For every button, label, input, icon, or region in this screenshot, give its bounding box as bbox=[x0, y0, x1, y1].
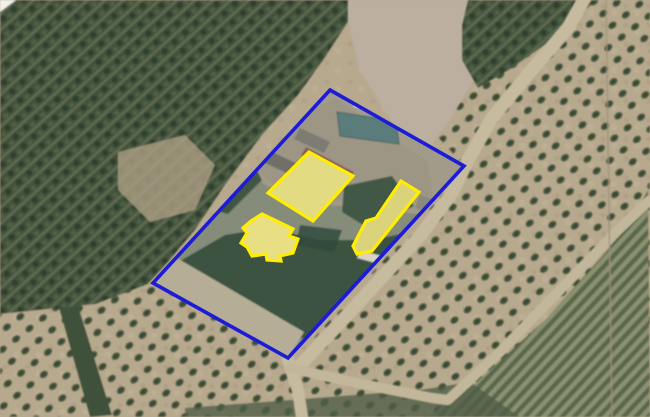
map-canvas[interactable] bbox=[0, 0, 650, 417]
satellite-image bbox=[0, 0, 650, 417]
